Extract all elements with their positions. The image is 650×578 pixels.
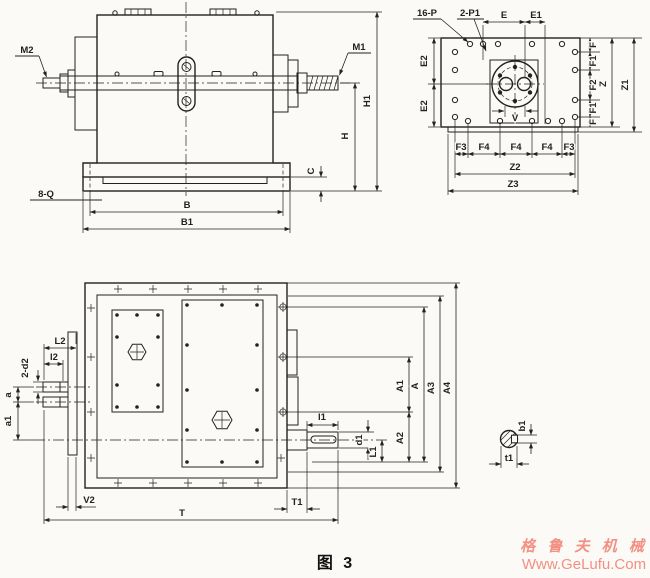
dim-label-e: E xyxy=(501,10,507,21)
dim-label-t: T xyxy=(179,508,185,519)
dim-label-m1: M1 xyxy=(352,42,366,53)
dim-label-f1-top: F1 xyxy=(588,55,599,67)
dim-label-f4-a: F4 xyxy=(478,142,490,153)
dim-label-16p: 16-P xyxy=(417,8,438,19)
dim-label-m2: M2 xyxy=(20,45,33,56)
dim-label-t1: T1 xyxy=(291,497,303,508)
dim-label-e1: E1 xyxy=(530,10,542,21)
dim-label-l2-big: L2 xyxy=(54,336,65,347)
dim-label-a-dist: A xyxy=(410,382,421,389)
key-slot xyxy=(512,435,518,443)
dim-label-z2: Z2 xyxy=(509,162,520,173)
dim-label-v: V xyxy=(512,113,519,124)
dim-label-f4-c: F4 xyxy=(541,142,553,153)
dim-label-t1-key: t1 xyxy=(505,453,514,464)
dim-label-a1: a1 xyxy=(3,415,14,426)
dim-label-8q: 8-Q xyxy=(38,189,54,200)
watermark-brand: 格 鲁 夫 机 械 xyxy=(520,538,648,555)
dim-label-shaft-l1: L1 xyxy=(368,446,379,458)
gearbox-technical-drawing: M2 M1 H1 H xyxy=(0,0,650,578)
dim-label-z1: Z1 xyxy=(620,79,631,91)
dim-label-f1-bottom: F1 xyxy=(588,102,599,114)
dim-label-h: H xyxy=(340,132,351,139)
dim-label-e2a: E2 xyxy=(419,55,430,67)
dim-label-a2-dist: A2 xyxy=(395,432,406,444)
watermark: 格 鲁 夫 机 械 Www.GeLufu.Com xyxy=(520,538,648,573)
dim-label-v2: V2 xyxy=(83,495,95,506)
dim-label-a: a xyxy=(3,392,14,398)
dim-label-f-top: F xyxy=(588,42,599,48)
dim-label-2p1: 2-P1 xyxy=(460,8,481,19)
watermark-site: Www.GeLufu.Com xyxy=(522,556,646,573)
dim-label-b: B xyxy=(184,200,191,211)
dim-label-2d2: 2-d2 xyxy=(20,358,31,378)
dim-label-z3: Z3 xyxy=(507,179,518,190)
dim-label-f-bottom: F xyxy=(588,119,599,125)
dim-label-h1: H1 xyxy=(362,94,373,107)
dim-label-f3-left: F3 xyxy=(455,142,466,153)
figure-caption: 图 3 xyxy=(317,554,355,572)
dim-label-e2b: E2 xyxy=(419,100,430,112)
dim-label-b1-key: b1 xyxy=(517,420,528,432)
dim-label-a3-dist: A3 xyxy=(426,382,437,394)
dim-label-a4-dist: A4 xyxy=(442,381,453,394)
dim-label-f4-b: F4 xyxy=(510,142,522,153)
dim-label-d1: d1 xyxy=(354,434,365,446)
dim-label-f3-right: F3 xyxy=(563,142,574,153)
dim-label-a1-dist: A1 xyxy=(395,379,406,392)
dim-label-l2-small: l2 xyxy=(50,352,58,363)
dim-label-b1: B1 xyxy=(181,217,194,228)
dim-label-l1-key: l1 xyxy=(318,412,327,423)
dim-label-z: Z xyxy=(598,81,609,87)
dim-label-c: C xyxy=(306,167,317,174)
